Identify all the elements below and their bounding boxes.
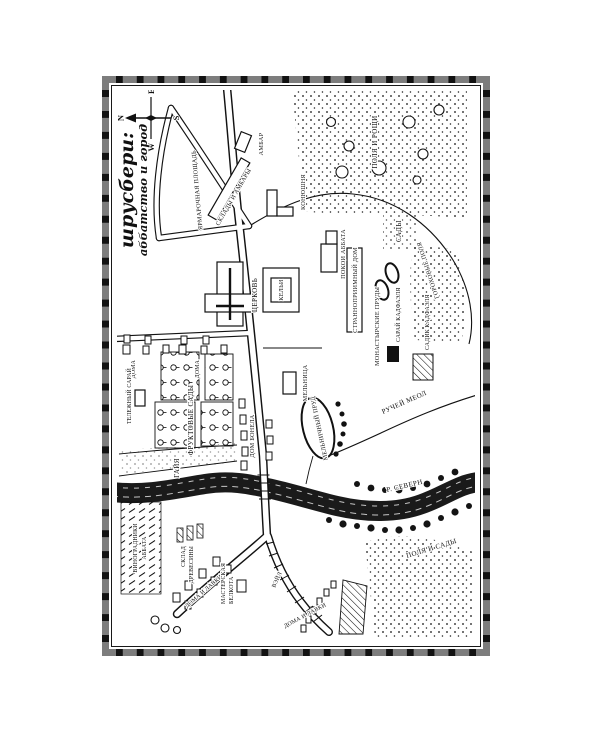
book-page: { "map": { "title": { "line1": "шрусбери… xyxy=(0,0,600,750)
fair-square-label: ЯРМАРОЧНАЯ ПЛОЩАДЬ xyxy=(191,150,205,231)
church-label: ЦЕРКОВЬ xyxy=(251,278,259,312)
vineyards-label-2: АББАТА xyxy=(142,536,148,560)
woodcut-frame: ЯРМАРОЧНАЯ ПЛОЩАДЬ АМБАР СКЛАДЫ И АМБАРЫ… xyxy=(102,76,490,656)
cart-shed-building xyxy=(135,390,145,406)
cadfael-shed-label: САРАЙ КАДФАЭЛЯ xyxy=(394,288,402,342)
bellecote-label-2: БЕЛКОТА xyxy=(229,576,235,604)
stable-wing xyxy=(277,207,293,216)
mill-label: МЕЛЬНИЦА xyxy=(302,364,309,401)
compass-e: E xyxy=(146,90,156,94)
cadfael-herb-garden-plot xyxy=(413,354,433,380)
houses-b-label: ДОМА xyxy=(195,359,201,378)
guest-label: СТРАННОПРИИМНЫЙ ДОМ xyxy=(351,247,359,333)
gardens-label: САДЫ xyxy=(395,220,403,242)
vineyards xyxy=(121,502,161,594)
meole-brook-label: РУЧЕЙ МЕОЛ xyxy=(381,389,428,416)
abbot-label: ПОКОИ АББАТА xyxy=(340,229,347,279)
gaye-label: ГАЙЯ xyxy=(173,458,181,478)
fields-groves-label: ПОЛЯ И РОЩИ xyxy=(371,115,379,168)
cadfael-shed-building xyxy=(387,346,399,362)
stable-label: КОНЮШНЯ xyxy=(300,174,307,210)
cadfael-garden-label: САДИК КАДФАЭЛЯ xyxy=(425,294,431,350)
timber-label-2: ДРЕВЕСИНЫ xyxy=(189,546,195,583)
stable-building xyxy=(267,190,277,216)
compass-s: S xyxy=(171,115,181,120)
mill-building xyxy=(283,372,296,394)
bellecote-workshop-building xyxy=(237,580,246,592)
barn-building xyxy=(235,132,252,153)
cart-shed-label: ТЕЛЕЖНЫЙ САРАЙ xyxy=(125,367,133,424)
ponds-label: МОНАСТЫРСКИЕ ПРУДЫ xyxy=(374,287,381,366)
barn-label: АМБАР xyxy=(258,132,265,155)
map-rotated-container: ЯРМАРОЧНАЯ ПЛОЩАДЬ АМБАР СКЛАДЫ И АМБАРЫ… xyxy=(117,90,475,642)
cells-label: КЕЛЬИ xyxy=(278,279,285,301)
timber-label-1: СКЛАД xyxy=(181,546,187,567)
map-title-line2: аббатство и город xyxy=(136,124,150,256)
shrewsbury-map: ЯРМАРОЧНАЯ ПЛОЩАДЬ АМБАР СКЛАДЫ И АМБАРЫ… xyxy=(117,90,475,642)
severn-label: Р. СЕВЕРН xyxy=(386,478,424,494)
abbot-lodging xyxy=(321,244,337,272)
town-block-hatched xyxy=(339,580,367,634)
map-title-line1: шрусбери: xyxy=(117,132,138,248)
pond-bushes xyxy=(333,401,346,456)
frame-inner-line: ЯРМАРОЧНАЯ ПЛОЩАДЬ АМБАР СКЛАДЫ И АМБАРЫ… xyxy=(111,85,481,647)
map-title: шрусбери: аббатство и город xyxy=(117,124,150,256)
timber-stacks xyxy=(177,524,203,542)
bonel-house-label: ДОМ БОНЕЛА xyxy=(249,414,256,457)
orchards-label: ФРУКТОВЫЕ САДЫ xyxy=(187,385,195,456)
vineyards-label-1: ВИНОГРАДНИКИ xyxy=(133,523,139,573)
abbot-lodging-wing xyxy=(326,231,337,244)
compass-n: N xyxy=(117,114,126,121)
bellecote-label-1: МАСТЕРСКАЯ xyxy=(221,563,227,604)
